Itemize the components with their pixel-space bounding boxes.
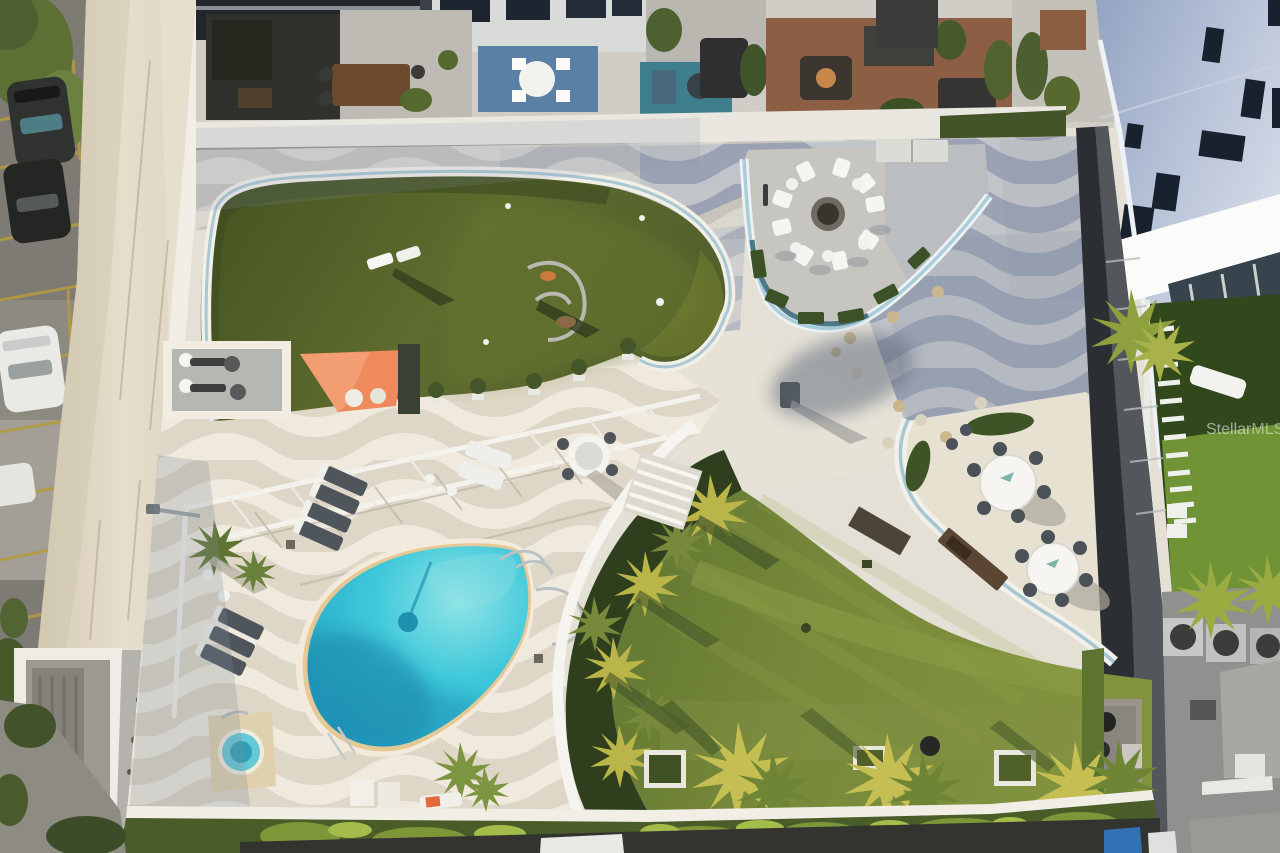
svg-text:StellarMLS: StellarMLS — [1206, 421, 1280, 438]
